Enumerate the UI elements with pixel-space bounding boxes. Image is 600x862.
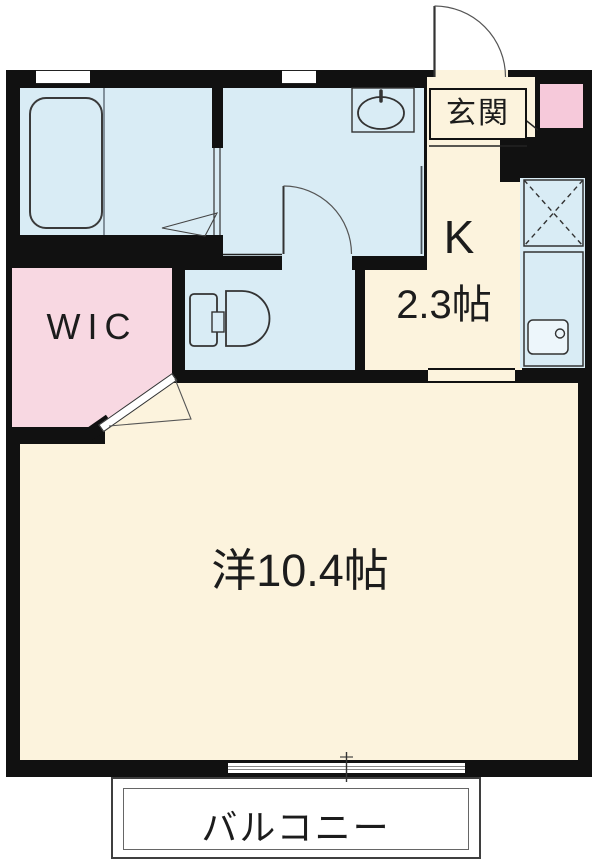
balcony-window [228, 761, 465, 775]
toilet-door-opening [282, 250, 352, 270]
shoe-cabinet [538, 82, 585, 130]
balcony-label: バルコニー [166, 799, 426, 851]
entrance-partition-wall [500, 137, 540, 182]
entrance-label: 玄関 [446, 97, 510, 130]
washroom-area [223, 88, 424, 256]
kitchen-counter-strip [520, 178, 585, 368]
bathroom-area [20, 88, 212, 235]
entrance-door-opening [434, 70, 508, 88]
entrance-label-box: 玄関 [429, 88, 527, 140]
kitchen-label: K [424, 210, 494, 264]
main-room-doorway [428, 368, 515, 383]
floor-plan: 玄関 WIC K 2.3帖 洋10.4帖 バルコニー [0, 0, 600, 862]
wic-label: WIC [16, 306, 168, 348]
main-room-label: 洋10.4帖 [170, 534, 430, 599]
kitchen-size-label: 2.3帖 [370, 272, 518, 330]
toilet-area [185, 270, 355, 370]
entrance-door-swing [435, 6, 506, 77]
bathroom-door-opening [212, 148, 223, 235]
bathroom-window [36, 70, 90, 84]
washroom-window [282, 70, 316, 84]
